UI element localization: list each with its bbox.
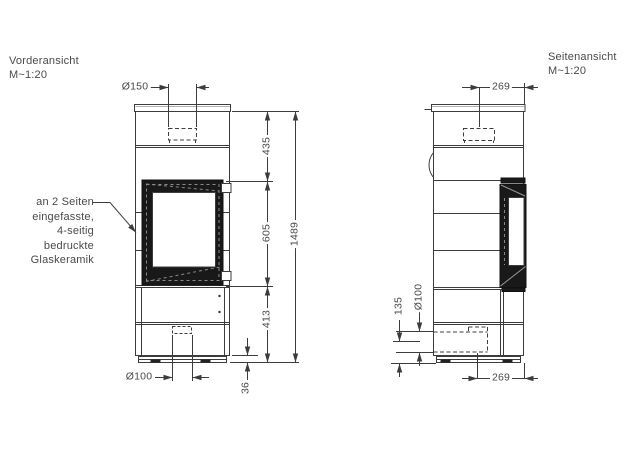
dim-label-lower-height: 413 (262, 308, 273, 330)
dim-label-total-height: 1489 (290, 220, 301, 248)
annotation-line: eingefasste, (14, 210, 94, 225)
front-base-plinth (139, 357, 227, 363)
glass-ceramic-annotation: an 2 Seiten eingefasste, 4-seitig bedruc… (14, 195, 94, 268)
dim-label-air-inlet-diameter: Ø100 (124, 372, 155, 383)
annotation-line: bedruckte (14, 239, 94, 254)
side-view-title: Seitenansicht (548, 50, 617, 64)
side-glass-panel (500, 178, 526, 292)
side-view-scale: M~1:20 (548, 64, 617, 78)
dim-label-depth: 269 (490, 373, 512, 384)
annotation-line: Glaskeramik (14, 253, 94, 268)
dim-label-plinth-height: 36 (241, 380, 252, 396)
annotation-line: 4-seitig (14, 224, 94, 239)
side-view-title-block: Seitenansicht M~1:20 (548, 50, 617, 78)
annotation-leader-line (93, 203, 136, 233)
door-handle-arc (429, 153, 434, 178)
dim-label-flue-offset: 269 (490, 82, 512, 93)
front-view-title: Vorderansicht (9, 54, 79, 68)
front-view-title-block: Vorderansicht M~1:20 (9, 54, 79, 82)
dim-label-glass-height: 605 (262, 222, 273, 244)
front-air-inlet (173, 327, 192, 334)
dim-label-air-duct-center-height: 135 (394, 295, 405, 317)
dim-label-flue-diameter: Ø150 (120, 82, 151, 93)
side-view-drawing (391, 83, 538, 379)
dim-label-air-duct-diameter: Ø100 (414, 282, 425, 313)
dim-label-upper-height: 435 (262, 135, 273, 157)
side-base-plinth (437, 357, 521, 363)
front-glass-panel (142, 180, 231, 285)
technical-drawing-page: Vorderansicht M~1:20 Seitenansicht M~1:2… (0, 0, 624, 460)
side-flue-collar (464, 88, 495, 143)
annotation-line: an 2 Seiten (14, 195, 94, 210)
front-view-scale: M~1:20 (9, 68, 79, 82)
front-flue-collar (169, 129, 197, 144)
side-air-duct (434, 327, 488, 352)
